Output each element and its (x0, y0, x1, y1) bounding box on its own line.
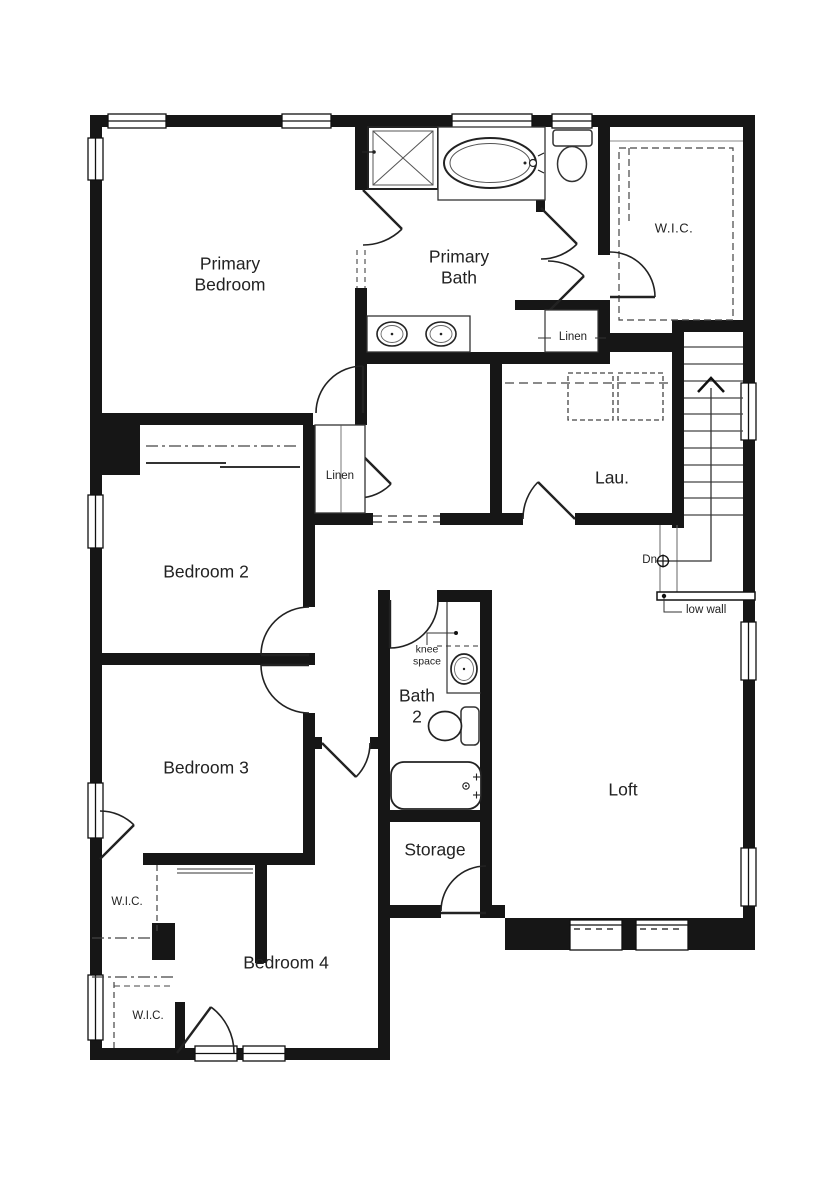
exterior-walls (90, 115, 755, 1060)
room-label-laundry: Lau. (595, 468, 629, 489)
room-label-primary-bedroom: Primary Bedroom (194, 253, 265, 294)
room-label-bath-2: Bath 2 (399, 685, 435, 726)
room-label-bedroom-3: Bedroom 3 (163, 758, 249, 779)
bathtub-primary (438, 127, 545, 200)
floor-plan-drawing (0, 0, 840, 1197)
room-label-linen-hall: Linen (326, 470, 354, 484)
annotation-knee-space: knee space (413, 644, 441, 667)
room-label-primary-bath: Primary Bath (429, 246, 489, 287)
vanity-primary (367, 316, 470, 352)
annotation-low-wall: low wall (686, 604, 726, 618)
room-label-linen-bath: Linen (559, 331, 587, 345)
room-label-wic-bedroom-3: W.I.C. (111, 896, 142, 910)
shower (362, 127, 438, 189)
floor-plan: Primary Bedroom Primary Bath W.I.C. Line… (0, 0, 840, 1197)
room-label-wic-bedroom-4: W.I.C. (132, 1010, 163, 1024)
room-label-loft: Loft (608, 780, 637, 801)
linen-closet-hall (315, 425, 365, 513)
room-label-wic-primary: W.I.C. (655, 220, 693, 235)
room-label-bedroom-4: Bedroom 4 (243, 953, 329, 974)
annotation-dn: Dn (642, 554, 657, 568)
room-label-bedroom-2: Bedroom 2 (163, 562, 249, 583)
toilet-primary (553, 130, 592, 182)
room-label-storage: Storage (404, 840, 465, 861)
dn-marker-icon (657, 555, 670, 568)
washer-dryer (505, 373, 670, 420)
bath2-toilet (461, 707, 479, 745)
